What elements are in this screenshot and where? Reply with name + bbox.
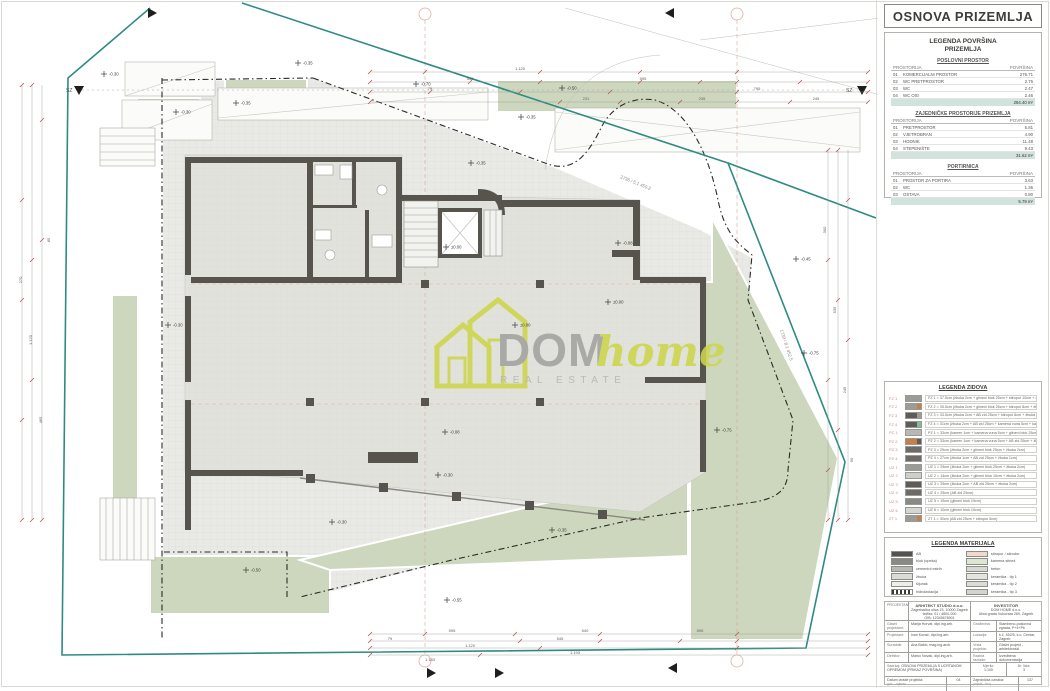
svg-text:79: 79 <box>388 636 393 641</box>
svg-text:-0.50: -0.50 <box>567 86 577 91</box>
material-swatch <box>891 573 913 580</box>
area-legend-heading: LEGENDA POVRŠINA PRIZEMLJA <box>891 38 1035 54</box>
wall-swatch <box>905 438 922 445</box>
wall-swatch <box>905 481 922 488</box>
level-marker: -0.30 <box>101 71 119 77</box>
material-row: žbuka <box>891 573 960 581</box>
area-row: 02VJETROBRAN4.90 <box>891 131 1035 138</box>
title-block: PROJEKTANT: ARHITEKT STUDIO d.o.o. Zagre… <box>884 601 1042 685</box>
material-swatch <box>891 581 913 588</box>
title-block-code: 137 <box>1019 677 1041 691</box>
svg-text:±0.00: ±0.00 <box>613 300 624 305</box>
material-legend-panel: LEGENDA MATERIJALA ABblok (opeka)cementn… <box>884 537 1042 597</box>
level-marker: -0.35 <box>468 160 486 166</box>
material-row: blok (opeka) <box>891 558 960 566</box>
level-marker: ±0.00 <box>605 299 624 305</box>
area-row: 01PRETPROSTOR5.81 <box>891 124 1035 131</box>
svg-text:545: 545 <box>557 636 564 641</box>
wall-legend-row: PZ 1PZ 1 = 33cm (kamen 1cm + kamena vuna… <box>889 428 1037 437</box>
material-row: keramika - tip 3 <box>966 588 1035 596</box>
logo-tagline-text: REAL ESTATE <box>500 375 626 386</box>
svg-text:90: 90 <box>849 457 854 462</box>
material-swatch <box>966 589 988 596</box>
svg-text:535: 535 <box>467 76 474 81</box>
svg-text:1.120: 1.120 <box>465 643 476 648</box>
material-swatch <box>891 551 913 558</box>
material-swatch <box>891 589 913 596</box>
material-swatch <box>891 558 913 565</box>
wall-legend-row: PZ 2PZ 2 = 33cm (kamen 1cm + kamena vuna… <box>889 437 1037 446</box>
svg-text:1.120: 1.120 <box>28 334 33 345</box>
wall-swatch <box>905 498 922 505</box>
material-legend-right: stiropor / stirodurkamena sitnežbetonker… <box>966 550 1035 596</box>
material-row: kamena sitnež <box>966 558 1035 566</box>
svg-text:1.193: 1.193 <box>570 650 581 655</box>
svg-text:SZ: SZ <box>846 88 852 94</box>
level-marker: -0.30 <box>173 109 191 115</box>
material-row: AB <box>891 550 960 558</box>
material-legend-grid: ABblok (opeka)cementni estrihžbukašljuna… <box>891 550 1035 596</box>
level-marker: -0.50 <box>243 567 261 573</box>
level-marker: -0.35 <box>295 60 313 66</box>
material-swatch <box>891 566 913 573</box>
area-row: 03HODNIK11.48 <box>891 138 1035 145</box>
material-row: šljunak <box>891 580 960 588</box>
wall-legend-row: PZ 4PZ 4 = 27cm (žbuka 1cm + AB zid 25cm… <box>889 454 1037 463</box>
svg-text:1.120: 1.120 <box>515 66 526 71</box>
svg-text:535: 535 <box>832 306 837 313</box>
wall-legend-row: ZT 1ZT 1 = 30cm (AB zid 25cm + stiropor … <box>889 514 1037 523</box>
level-marker: ±0.00 <box>512 322 531 328</box>
level-marker: -0.08 <box>442 429 460 435</box>
wall-swatch <box>905 455 922 462</box>
svg-text:-0.35: -0.35 <box>476 161 486 166</box>
area-row: 01PROSTOR ZA PORTIRA3.63 <box>891 177 1035 184</box>
wall-legend-panel: LEGENDA ZIDOVA FZ 1FZ 1 = 37.5cm (žbuka … <box>884 381 1042 533</box>
wall-swatch <box>905 472 922 479</box>
sheet-title-box: OSNOVA PRIZEMLJA <box>884 4 1042 28</box>
material-swatch <box>966 573 988 580</box>
material-row: hidroizolacija <box>891 588 960 596</box>
svg-text:1.183: 1.183 <box>425 657 436 662</box>
svg-text:-0.08: -0.08 <box>450 430 460 435</box>
wall-legend-row: UZ 3UZ 3 = 29cm (žbuka 2cm + AB zid 25cm… <box>889 480 1037 489</box>
level-marker: -0.08 <box>615 240 633 246</box>
svg-text:-0.45: -0.45 <box>801 257 811 262</box>
svg-text:-0.70: -0.70 <box>421 82 431 87</box>
title-block-sheet-no: Br. lista: 3 <box>1007 663 1041 676</box>
wall-legend-row: UZ 2UZ 2 = 14cm (žbuka 2cm + glineni blo… <box>889 471 1037 480</box>
wall-swatch <box>905 464 922 471</box>
material-swatch <box>966 558 988 565</box>
material-row: beton <box>966 565 1035 573</box>
title-block-investitor: INVESTITOR DOM HOME d.o.o. Ulica grada V… <box>971 602 1041 620</box>
svg-text:-0.30: -0.30 <box>443 473 453 478</box>
level-marker: ±0.00 <box>443 244 462 250</box>
svg-text:±0.00: ±0.00 <box>451 245 462 250</box>
wall-swatch <box>905 446 922 453</box>
title-block-projektant-label: PROJEKTANT: <box>885 602 909 620</box>
svg-text:-0.30: -0.30 <box>181 110 191 115</box>
wall-swatch <box>905 507 922 514</box>
level-marker: -0.55 <box>444 597 462 603</box>
wall-legend-row: UZ 6UZ 6 = 10cm (glineni blok 10cm) <box>889 506 1037 515</box>
level-marker: -0.75 <box>801 350 819 356</box>
title-block-row: Suradnik:Ana Babić, mag.ing.arch.Vrsta p… <box>885 642 1041 653</box>
area-row: 02WC PRETPROSTOR2.76 <box>891 78 1035 85</box>
wall-swatch <box>905 489 922 496</box>
area-row: 04WC OSI2.46 <box>891 92 1035 99</box>
svg-text:270: 270 <box>18 276 23 283</box>
svg-text:245: 245 <box>813 96 820 101</box>
svg-text:245: 245 <box>842 386 847 393</box>
svg-text:-0.30: -0.30 <box>337 520 347 525</box>
material-legend-title: LEGENDA MATERIJALA <box>891 541 1035 547</box>
title-block-row: Glavni projektant:Marija Horvat, dipl.in… <box>885 621 1041 632</box>
wall-legend-row: FZ 3FZ 3 = 33.5cm (žbuka 2cm + AB zid 25… <box>889 411 1037 420</box>
level-marker: -0.30 <box>329 519 347 525</box>
logo-home-text: home <box>596 327 726 376</box>
logo-dom-text: DOM <box>497 324 607 376</box>
area-section: PORTIRNICAPROSTORIJAPOVRŠINA01PROSTOR ZA… <box>891 164 1035 205</box>
svg-text:-0.55: -0.55 <box>452 598 462 603</box>
floor-plan-svg: DOM home REAL ESTATE 1.12059579523123524… <box>0 0 878 688</box>
svg-text:595: 595 <box>640 76 647 81</box>
svg-text:79: 79 <box>428 86 433 91</box>
area-total: 284.40 m² <box>891 99 1035 106</box>
svg-text:795: 795 <box>754 86 761 91</box>
level-marker: -0.75 <box>714 427 732 433</box>
material-row: keramika - tip 2 <box>966 580 1035 588</box>
svg-text:±0.00: ±0.00 <box>520 323 531 328</box>
title-block-row: Direktor:Marko Novak, dipl.ing.arh.Razin… <box>885 653 1041 664</box>
svg-text:595: 595 <box>449 628 456 633</box>
material-swatch <box>966 566 988 573</box>
wall-legend-row: PZ 3PZ 3 = 29cm (žbuka 2cm + glineni blo… <box>889 446 1037 455</box>
wall-legend-row: FZ 1FZ 1 = 37.5cm (žbuka 2cm + glineni b… <box>889 394 1037 403</box>
material-row: keramika - tip 1 <box>966 573 1035 581</box>
wall-swatch <box>905 515 922 522</box>
title-block-scale: Mjerilo: 1:100 <box>971 663 1007 676</box>
svg-text:-0.30: -0.30 <box>109 72 119 77</box>
svg-text:465: 465 <box>38 416 43 423</box>
wall-legend-title: LEGENDA ZIDOVA <box>889 385 1037 391</box>
wall-swatch <box>905 403 922 410</box>
area-section: ZAJEDNIČKE PROSTORIJE PRIZEMLJAPROSTORIJ… <box>891 111 1035 159</box>
material-legend-left: ABblok (opeka)cementni estrihžbukašljuna… <box>891 550 960 596</box>
title-block-row: Projektant:Ivan Kovač, dipl.ing.arh.Loka… <box>885 632 1041 643</box>
svg-text:-0.35: -0.35 <box>303 61 313 66</box>
material-swatch <box>966 551 988 558</box>
wall-legend-row: FZ 4FZ 4 = 31cm (žbuka 2cm + AB zid 25cm… <box>889 420 1037 429</box>
title-block-date-label: Datum izrade projekta: god. - mjesec <box>885 677 947 691</box>
svg-text:-0.30: -0.30 <box>173 323 183 328</box>
wall-legend-row: UZ 4UZ 4 = 25cm (AB zid 25cm) <box>889 489 1037 498</box>
svg-text:-0.75: -0.75 <box>722 428 732 433</box>
material-row: cementni estrih <box>891 565 960 573</box>
svg-text:300: 300 <box>822 226 827 233</box>
level-marker: -0.45 <box>793 256 811 262</box>
material-row: stiropor / stirodur <box>966 550 1035 558</box>
area-row: 01KOMERCIJALNI PROSTOR276.71 <box>891 71 1035 78</box>
level-marker: -0.70 <box>413 81 431 87</box>
area-section: POSLOVNI PROSTORPROSTORIJAPOVRŠINA01KOME… <box>891 58 1035 106</box>
svg-text:-0.35: -0.35 <box>557 528 567 533</box>
area-total: 5.79 m² <box>891 198 1035 205</box>
area-legend-sections: POSLOVNI PROSTORPROSTORIJAPOVRŠINA01KOME… <box>891 58 1035 205</box>
material-swatch <box>966 581 988 588</box>
area-row: 03OSTAVA0.80 <box>891 191 1035 198</box>
area-row: 02WC1.36 <box>891 184 1035 191</box>
svg-text:595: 595 <box>697 628 704 633</box>
area-row: 03WC2.47 <box>891 85 1035 92</box>
title-block-content: Sadržaj: OSNOVA PRIZEMLJA S UCRTANOM OPR… <box>885 663 971 676</box>
level-marker: -0.35 <box>233 100 251 106</box>
svg-text:2736 / 5.1 450.2: 2736 / 5.1 450.2 <box>620 174 652 191</box>
svg-text:-0.50: -0.50 <box>251 568 261 573</box>
svg-text:-0.35: -0.35 <box>526 115 536 120</box>
sheet-divider <box>876 0 877 688</box>
svg-text:85: 85 <box>46 237 51 242</box>
area-total: 31.62 m² <box>891 152 1035 159</box>
sheet-title: OSNOVA PRIZEMLJA <box>893 9 1033 24</box>
svg-text:-0.35: -0.35 <box>241 101 251 106</box>
level-marker: -0.30 <box>165 322 183 328</box>
svg-text:-0.08: -0.08 <box>623 241 633 246</box>
title-block-code-label: Zajednička oznaka: projekt - broj <box>971 677 1019 691</box>
svg-text:540: 540 <box>582 628 589 633</box>
svg-text:231: 231 <box>583 96 590 101</box>
level-marker: -0.30 <box>435 472 453 478</box>
level-marker: -0.50 <box>559 85 577 91</box>
area-legend-panel: LEGENDA POVRŠINA PRIZEMLJA POSLOVNI PROS… <box>884 32 1042 198</box>
svg-text:-0.75: -0.75 <box>809 351 819 356</box>
area-row: 04STEPENIŠTE9.43 <box>891 145 1035 152</box>
wall-legend-row: UZ 1UZ 1 = 29cm (žbuka 2cm + glineni blo… <box>889 463 1037 472</box>
wall-swatch <box>905 412 922 419</box>
wall-legend-row: UZ 5UZ 5 = 19cm (glineni blok 19cm) <box>889 497 1037 506</box>
title-block-projektant: ARHITEKT STUDIO d.o.o. Zagrebačka ulica … <box>909 602 971 620</box>
level-marker: -0.35 <box>549 527 567 533</box>
wall-legend-rows: FZ 1FZ 1 = 37.5cm (žbuka 2cm + glineni b… <box>889 394 1037 523</box>
svg-text:235: 235 <box>699 96 706 101</box>
wall-swatch <box>905 421 922 428</box>
wall-swatch <box>905 395 922 402</box>
wall-swatch <box>905 429 922 436</box>
wall-legend-row: FZ 2FZ 2 = 35.5cm (žbuka 2cm + glineni b… <box>889 403 1037 412</box>
title-block-rows: Glavni projektant:Marija Horvat, dipl.in… <box>885 621 1041 663</box>
svg-text:SZ: SZ <box>66 88 72 94</box>
level-marker: -0.35 <box>518 114 536 120</box>
title-block-date: 04 <box>947 677 971 691</box>
